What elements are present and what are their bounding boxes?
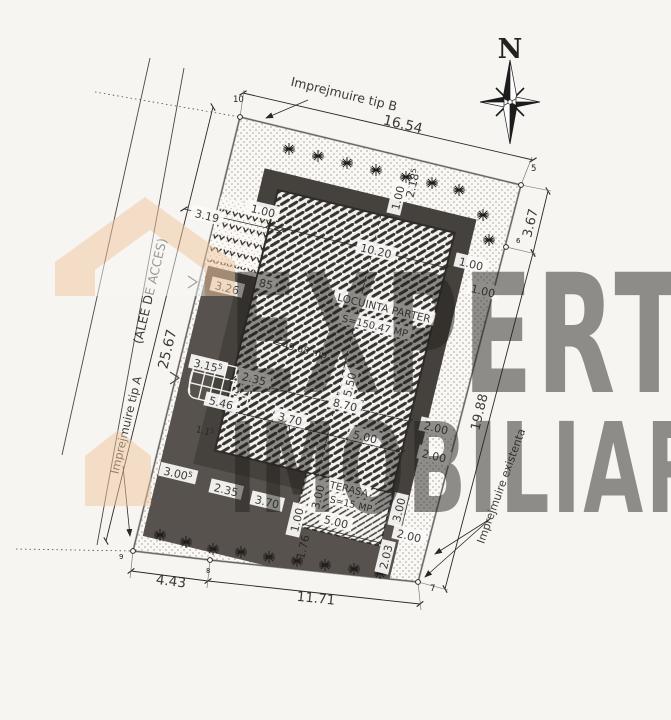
site-plan-page: { "watermark": { "line1": "EXPERT", "lin… (0, 0, 671, 720)
svg-text:5: 5 (531, 164, 536, 174)
svg-text:9: 9 (119, 553, 123, 561)
site-plan-drawing: 1056789 16.54Imprejmuire tip B25.67(ALEE… (0, 0, 671, 720)
svg-text:10: 10 (233, 95, 244, 105)
svg-text:8: 8 (206, 567, 210, 575)
watermark-text-2: IMOBILIAR (228, 395, 671, 542)
svg-text:7: 7 (430, 584, 435, 594)
